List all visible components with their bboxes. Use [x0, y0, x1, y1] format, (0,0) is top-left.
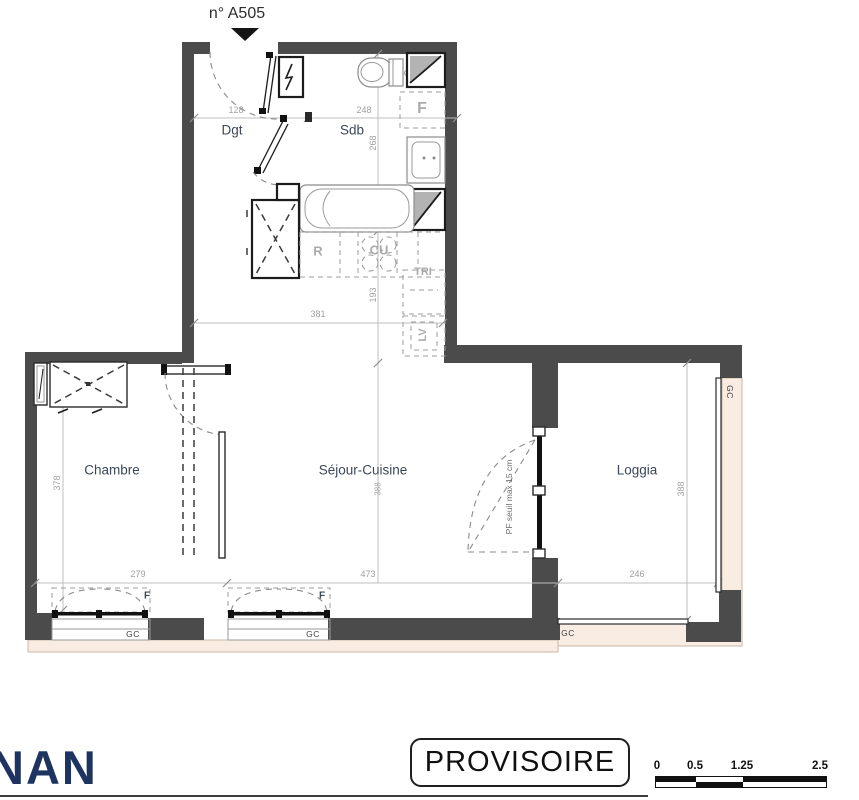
exterior-strips: [28, 378, 742, 652]
door-jamb-mark: [305, 112, 312, 122]
dishwasher-label: LV: [417, 328, 429, 341]
loggia-guardrails: [558, 378, 721, 624]
facade-bottom-strip: [28, 640, 558, 652]
bath-closet: [247, 184, 299, 278]
scale-bar: 0 0.5 1.25 2.5: [652, 760, 830, 790]
scale-tick-25: 2.5: [812, 760, 828, 772]
pf-threshold-note: PF seuil max 15 cm: [504, 460, 514, 535]
wall-sejour-loggia-upper: [532, 363, 558, 428]
dim-sejour-height: 388: [374, 482, 383, 495]
entry-marker: [231, 28, 259, 41]
dim-dgt-width: 128: [228, 105, 243, 115]
scale-tick-0: 0: [654, 760, 660, 772]
window-label-sejour: F: [319, 591, 325, 602]
wall-upper-left: [182, 42, 194, 363]
waste-sorting-label: TRI: [414, 266, 432, 278]
toilet: [358, 58, 410, 87]
walls: [25, 42, 742, 642]
room-label-sejour: Séjour-Cuisine: [319, 463, 408, 478]
dim-chambre-height: 378: [52, 475, 62, 490]
cooktop-label: CU: [370, 243, 389, 258]
dim-sdb-height: 268: [368, 135, 378, 150]
builder-logo: NAN: [0, 740, 98, 795]
guardrail-label-4: GC: [725, 385, 735, 399]
floor-plan: n° A505 Dgt Sdb Chambre Séjour-Cuisine L…: [0, 0, 859, 800]
radiator: [34, 363, 47, 405]
scale-bar-labels: 0 0.5 1.25 2.5: [652, 760, 830, 774]
room-label-loggia: Loggia: [617, 463, 658, 478]
sdb-door: [253, 115, 288, 185]
floor-plan-drawing: [0, 0, 859, 800]
guardrail-label-2: GC: [306, 629, 320, 639]
chambre-sejour-partition: [219, 432, 225, 558]
room-label-chambre: Chambre: [84, 463, 140, 478]
electrical-panel: [279, 57, 303, 97]
duct-label: F: [417, 100, 427, 118]
scale-tick-125: 1.25: [731, 760, 753, 772]
chambre-closet: [50, 362, 127, 413]
wall-top-left: [182, 42, 210, 54]
wall-bottom-left-corner: [25, 613, 52, 640]
washbasin: [407, 137, 445, 183]
wall-upper-right: [445, 42, 457, 345]
soffit-dashed-lines: [183, 368, 194, 557]
guardrail-label-3: GC: [561, 628, 575, 638]
wall-loggia-top-corner: [720, 345, 742, 378]
wall-loggia-bottom-corner: [719, 590, 741, 642]
chambre-door: [161, 364, 231, 435]
wall-bottom-pier-1: [148, 618, 204, 640]
room-label-dgt: Dgt: [221, 123, 242, 138]
window-label-chambre: F: [144, 591, 150, 602]
dim-loggia-width: 246: [629, 569, 644, 579]
wall-mid-horizontal: [444, 345, 722, 363]
dim-kitchen-height: 193: [368, 287, 378, 302]
dim-chambre-width: 279: [130, 569, 145, 579]
wall-bottom-sejour: [328, 618, 560, 640]
entry-arrow-icon: [231, 28, 259, 41]
fridge-label: R: [313, 244, 322, 259]
dim-loggia-height: 388: [676, 481, 686, 496]
guardrail-label-1: GC: [126, 629, 140, 639]
footer-rule: [0, 795, 648, 797]
unit-number: n° A505: [209, 5, 265, 23]
bathtub: [300, 185, 414, 232]
room-label-sdb: Sdb: [340, 123, 364, 138]
scale-tick-05: 0.5: [687, 760, 703, 772]
scale-bar-graphic: [655, 776, 827, 788]
provisional-stamp: PROVISOIRE: [410, 738, 630, 787]
dim-upper-width: 381: [310, 309, 325, 319]
shower-corner-unit-bottom: [411, 189, 445, 230]
shower-corner-unit-top: [407, 53, 445, 87]
dim-sejour-width: 473: [360, 569, 375, 579]
dim-sdb-width: 248: [356, 105, 371, 115]
wall-loggia-bottom-block: [686, 622, 719, 642]
